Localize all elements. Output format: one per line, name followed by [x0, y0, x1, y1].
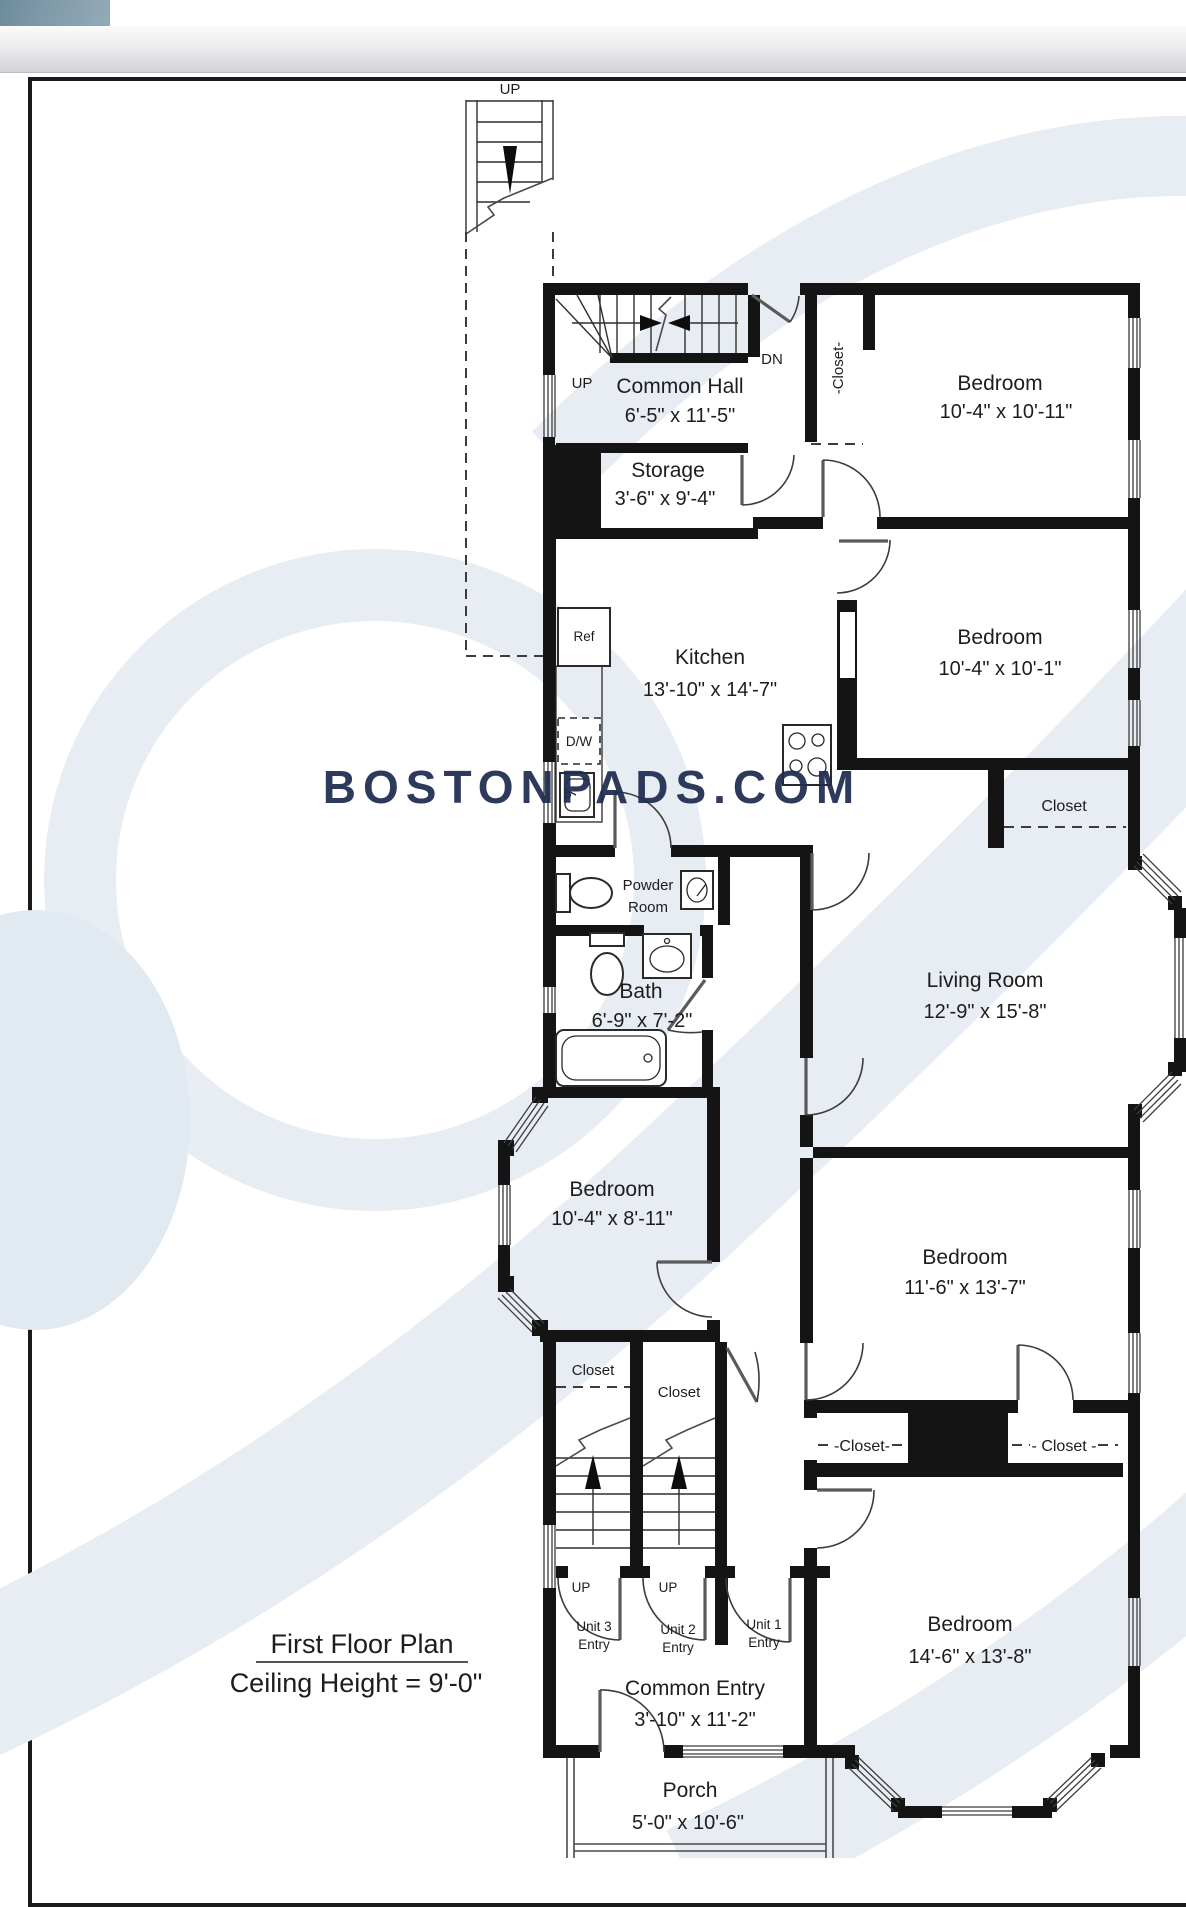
viewer-toolbar [0, 26, 1186, 73]
screenshot-root: { "colors": { "wall": "#141414", "line":… [0, 0, 1186, 1858]
floor-plan-page [28, 77, 1186, 1907]
viewer-tab[interactable] [0, 0, 110, 26]
